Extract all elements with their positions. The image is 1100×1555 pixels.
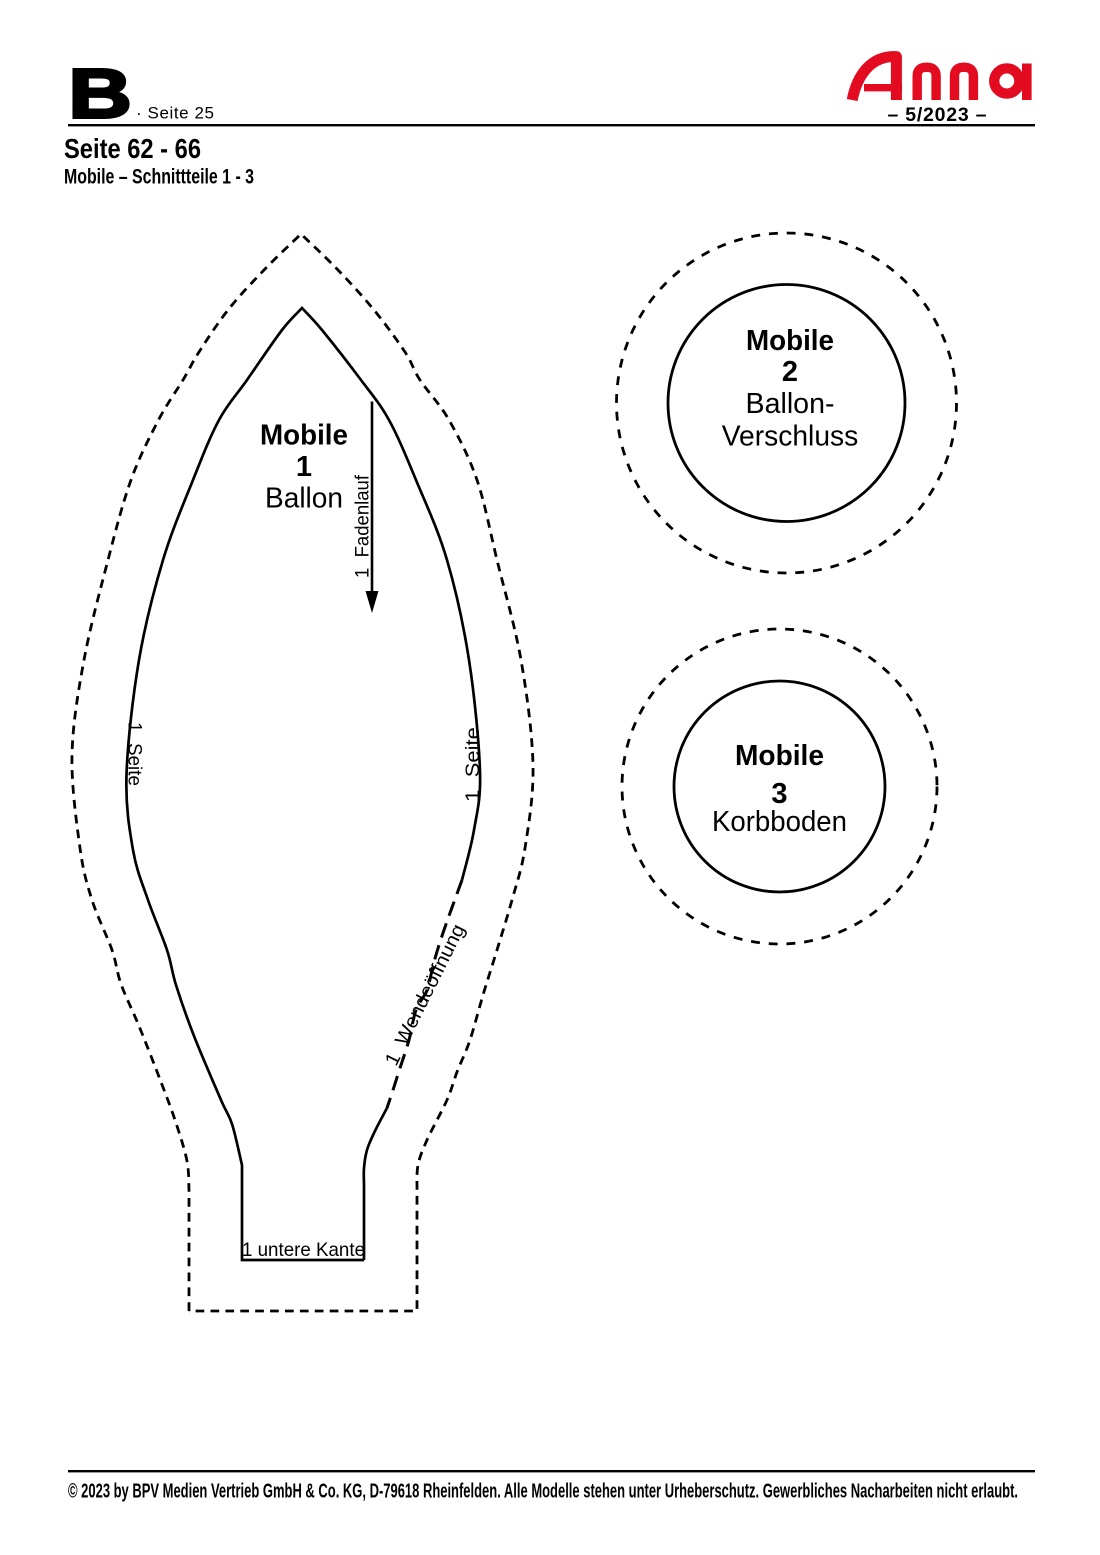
svg-text:Verschluss: Verschluss	[722, 421, 859, 453]
svg-text:B: B	[69, 54, 132, 133]
svg-text:1 Wendeöffnung: 1 Wendeöffnung	[381, 921, 470, 1070]
svg-text:– 5/2023 –: – 5/2023 –	[888, 104, 987, 126]
svg-text:· Seite 25: · Seite 25	[136, 104, 214, 123]
svg-text:Mobile – Schnittteile 1 - 3: Mobile – Schnittteile 1 - 3	[64, 165, 254, 189]
svg-text:1 untere Kante: 1 untere Kante	[242, 1239, 365, 1261]
svg-text:Seite 62 - 66: Seite 62 - 66	[64, 133, 201, 164]
svg-text:1 Seite: 1 Seite	[124, 722, 146, 786]
svg-text:Ballon-: Ballon-	[746, 388, 835, 420]
svg-text:Mobile: Mobile	[735, 740, 824, 772]
svg-text:© 2023 by BPV Medien Vertrieb: © 2023 by BPV Medien Vertrieb GmbH & Co.…	[68, 1480, 1018, 1503]
svg-text:Mobile: Mobile	[260, 420, 348, 452]
svg-text:Ballon: Ballon	[265, 483, 343, 515]
svg-text:1: 1	[296, 451, 312, 483]
svg-text:Mobile: Mobile	[746, 325, 834, 357]
svg-text:1 Seite: 1 Seite	[462, 727, 484, 802]
svg-text:1 Fadenlauf: 1 Fadenlauf	[352, 474, 374, 578]
svg-text:Korbboden: Korbboden	[712, 806, 847, 838]
svg-text:2: 2	[782, 356, 798, 388]
